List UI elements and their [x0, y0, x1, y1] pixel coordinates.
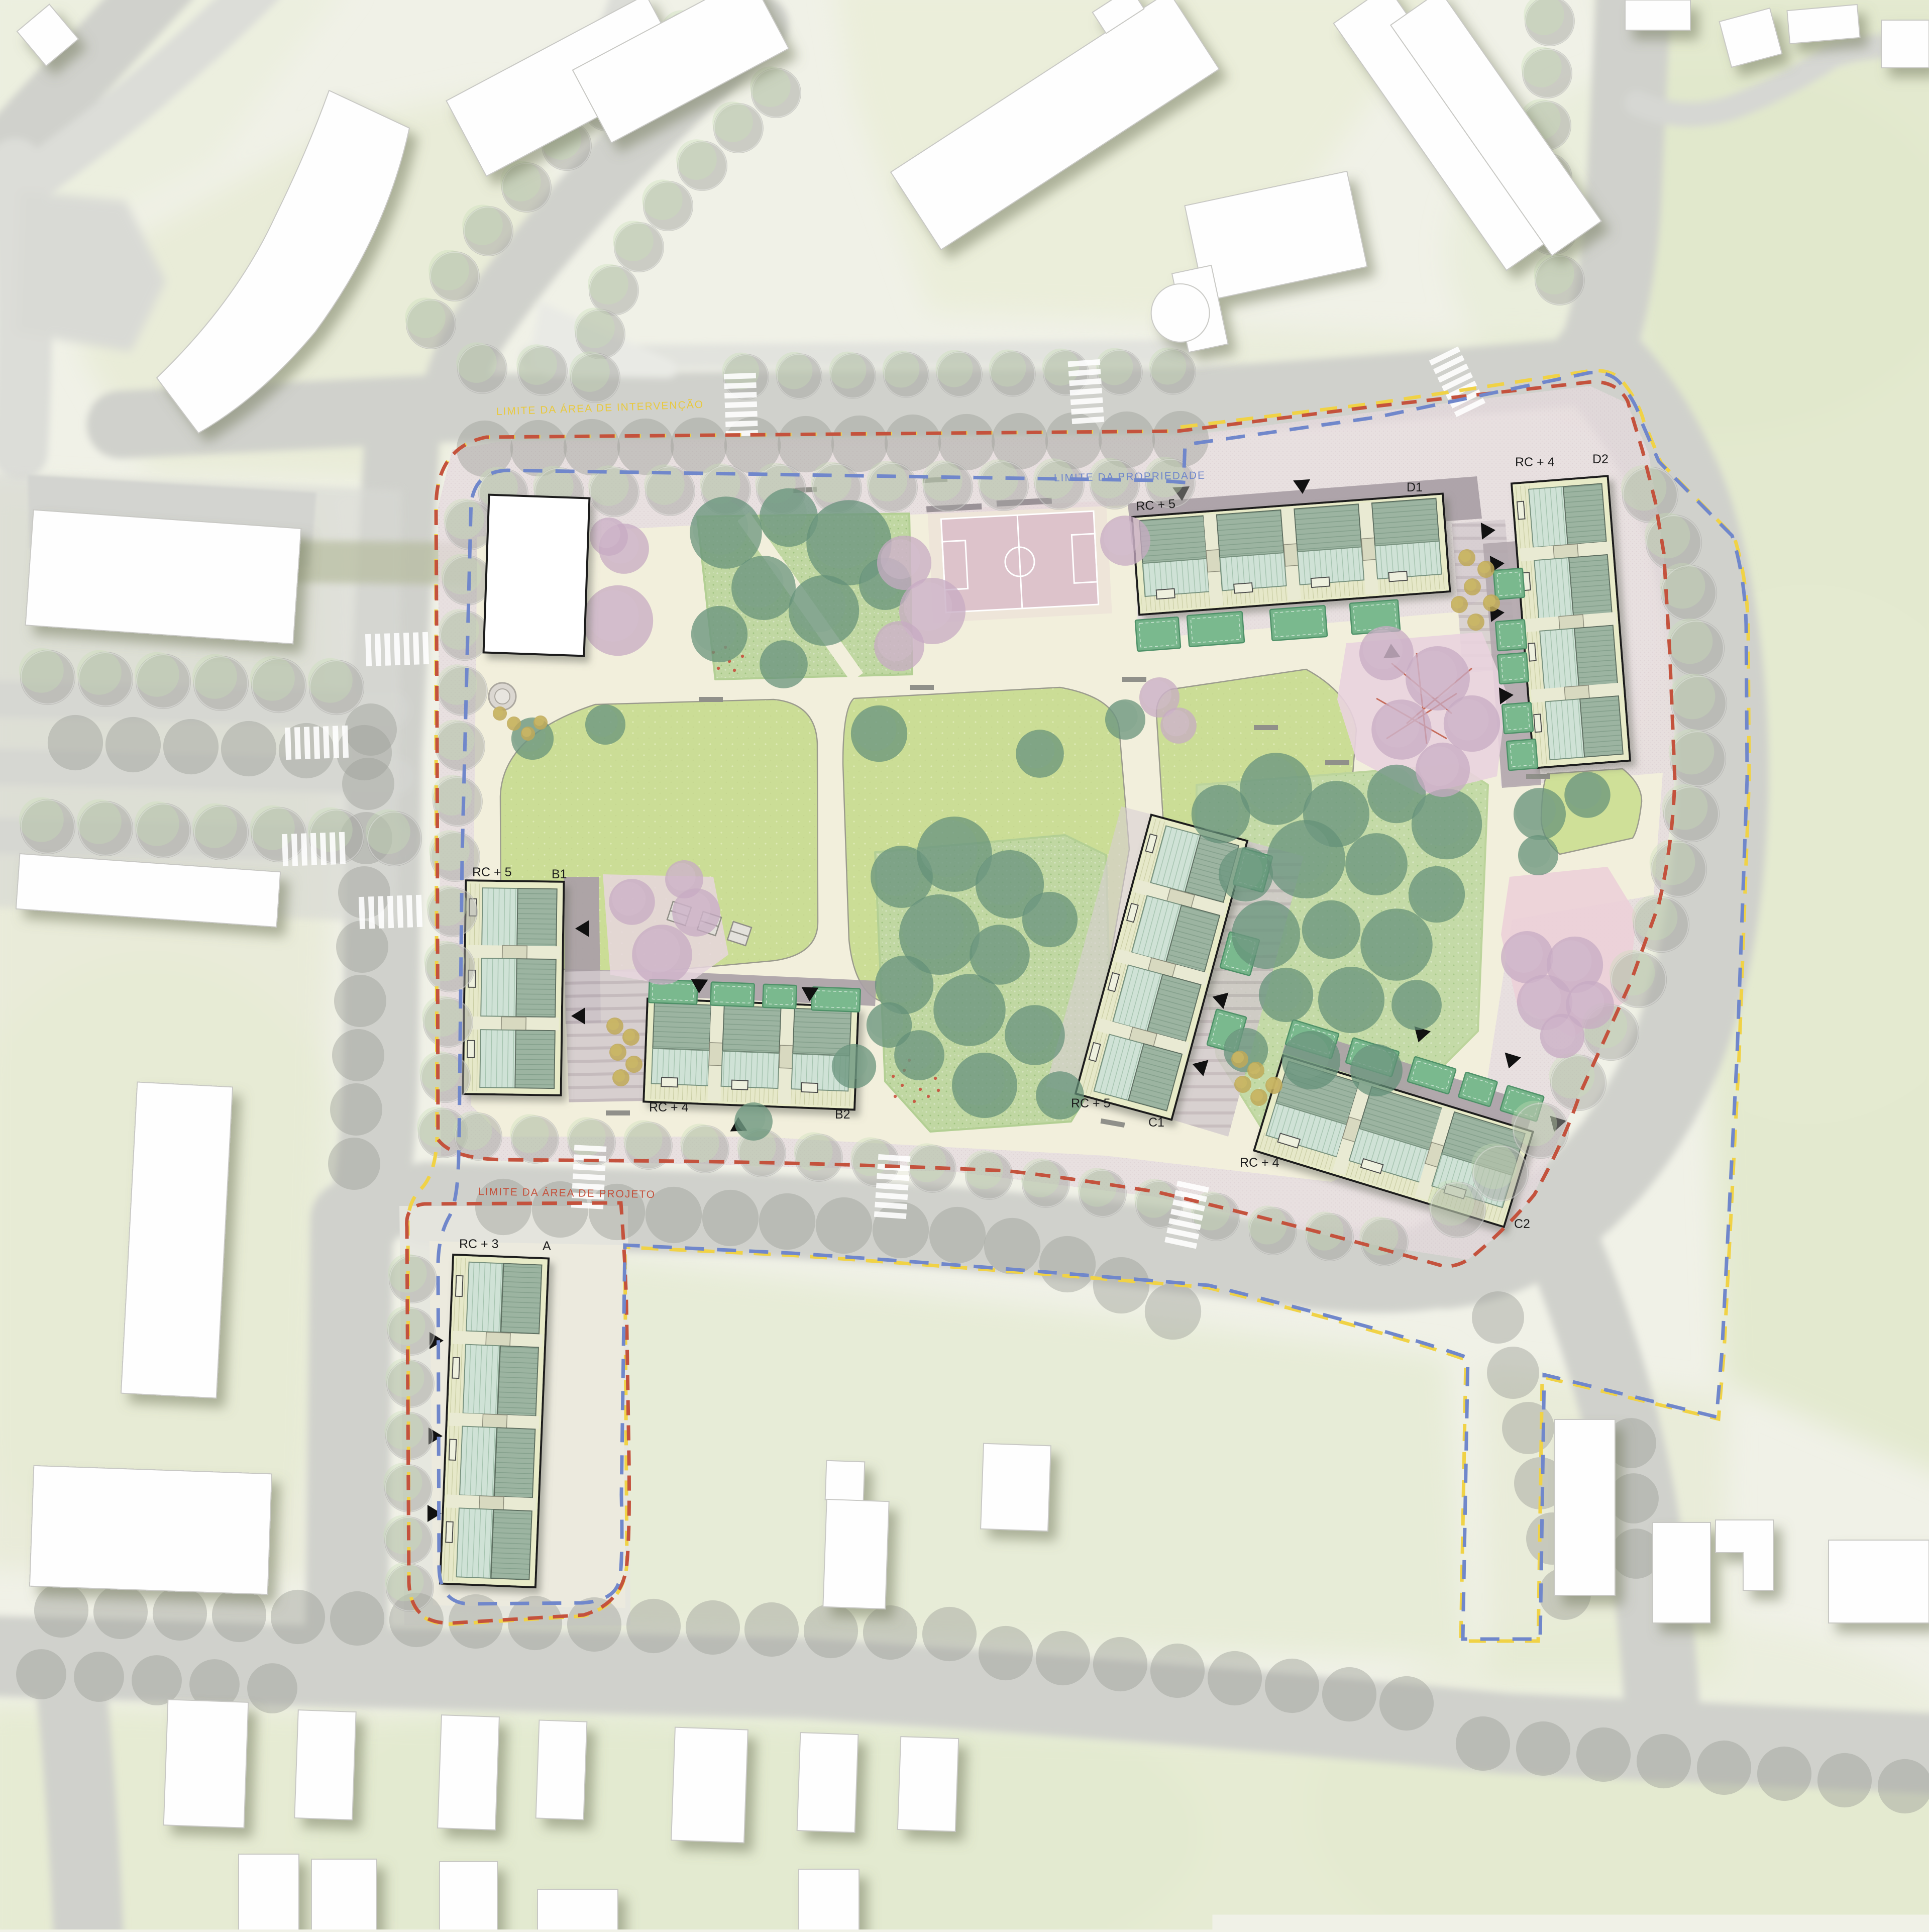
svg-text:RC + 5: RC + 5 — [1135, 497, 1175, 514]
svg-text:C2: C2 — [1514, 1217, 1530, 1231]
svg-text:RC + 4: RC + 4 — [1240, 1156, 1279, 1170]
svg-text:RC + 5: RC + 5 — [1071, 1096, 1111, 1110]
svg-text:RC + 5: RC + 5 — [472, 865, 512, 879]
svg-text:B2: B2 — [835, 1107, 850, 1122]
svg-text:RC + 4: RC + 4 — [649, 1100, 689, 1114]
svg-text:C1: C1 — [1148, 1115, 1164, 1130]
svg-text:B1: B1 — [552, 867, 567, 881]
svg-text:D1: D1 — [1407, 480, 1423, 494]
svg-text:D2: D2 — [1592, 452, 1609, 466]
svg-text:RC + 3: RC + 3 — [459, 1237, 499, 1251]
svg-text:RC + 4: RC + 4 — [1515, 455, 1555, 469]
svg-text:A: A — [543, 1239, 551, 1253]
